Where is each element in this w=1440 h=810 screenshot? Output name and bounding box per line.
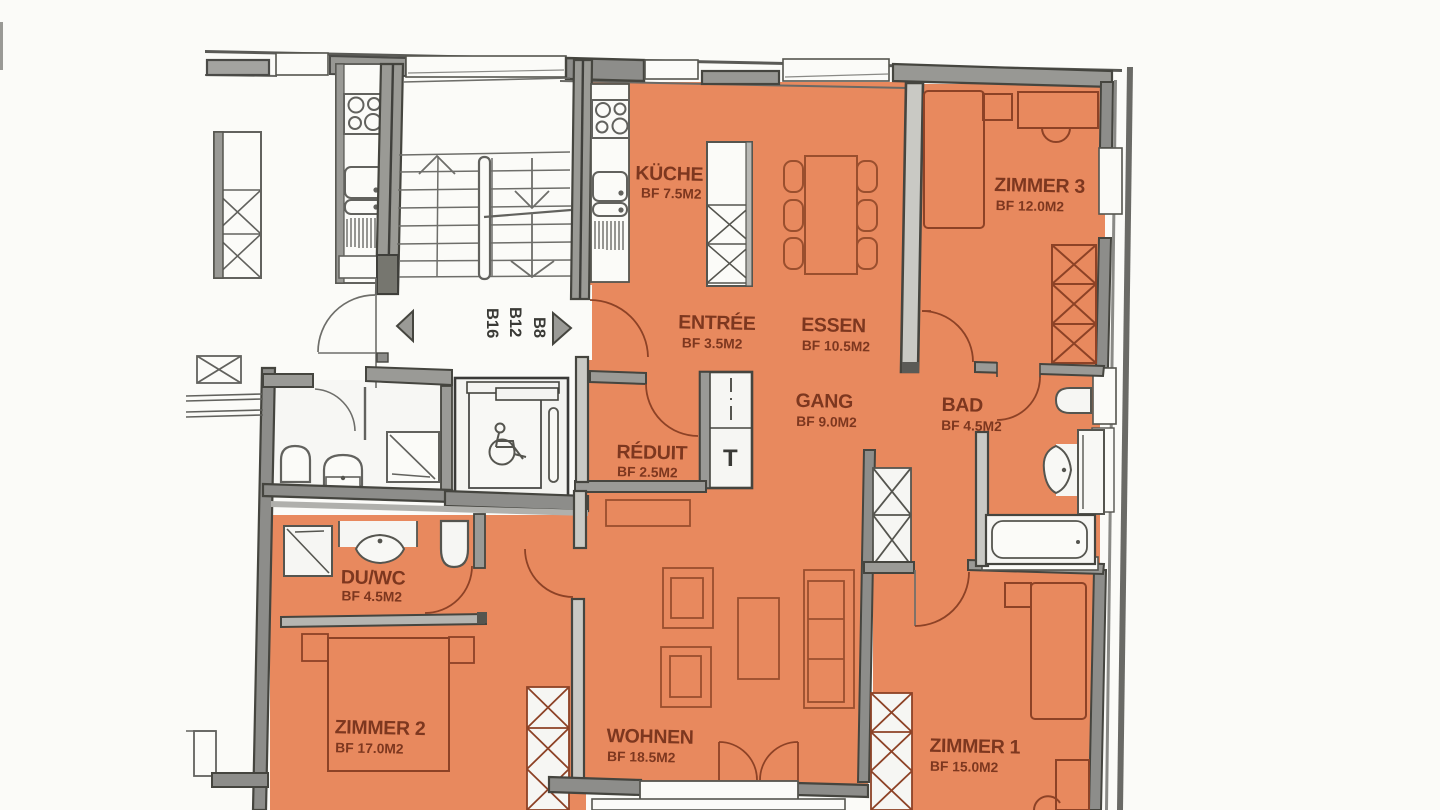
svg-text:BF 9.0M2: BF 9.0M2 <box>796 414 857 430</box>
svg-text:B12: B12 <box>506 307 524 337</box>
svg-text:GANG: GANG <box>795 390 853 413</box>
svg-text:KÜCHE: KÜCHE <box>635 161 704 185</box>
svg-text:B16: B16 <box>483 308 501 338</box>
svg-text:BF 15.0M2: BF 15.0M2 <box>930 759 999 775</box>
svg-text:BF 4.5M2: BF 4.5M2 <box>341 588 402 604</box>
svg-text:BF 7.5M2: BF 7.5M2 <box>641 186 702 202</box>
svg-text:BF 10.5M2: BF 10.5M2 <box>802 338 871 354</box>
svg-text:ESSEN: ESSEN <box>801 314 866 337</box>
svg-text:BF 4.5M2: BF 4.5M2 <box>941 418 1002 434</box>
svg-text:DU/WC: DU/WC <box>341 566 406 589</box>
svg-text:BF 12.0M2: BF 12.0M2 <box>996 198 1065 214</box>
svg-text:ZIMMER 2: ZIMMER 2 <box>334 716 426 740</box>
svg-text:B8: B8 <box>530 317 548 338</box>
svg-text:BF 2.5M2: BF 2.5M2 <box>617 464 678 480</box>
svg-text:RÉDUIT: RÉDUIT <box>616 440 688 464</box>
svg-text:ZIMMER 1: ZIMMER 1 <box>929 735 1021 759</box>
svg-text:BAD: BAD <box>941 394 983 417</box>
svg-text:BF 3.5M2: BF 3.5M2 <box>682 335 743 351</box>
svg-text:ENTRÉE: ENTRÉE <box>678 310 756 335</box>
svg-text:ZIMMER 3: ZIMMER 3 <box>994 174 1086 198</box>
svg-text:BF 18.5M2: BF 18.5M2 <box>607 749 676 765</box>
svg-text:BF 17.0M2: BF 17.0M2 <box>335 740 404 756</box>
svg-text:WOHNEN: WOHNEN <box>606 725 693 749</box>
svg-text:T: T <box>723 445 738 472</box>
